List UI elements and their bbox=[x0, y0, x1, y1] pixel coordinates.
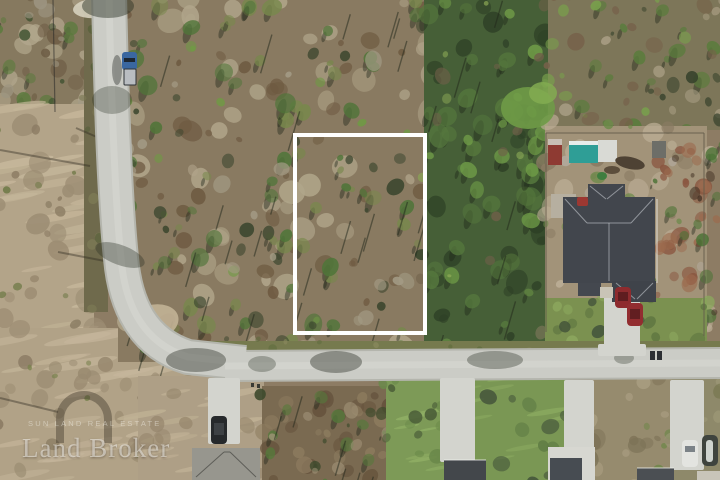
vehicle-red-car-1-roof bbox=[618, 292, 628, 301]
vegetation-blob bbox=[493, 456, 510, 471]
house-c-roof bbox=[444, 460, 486, 480]
mailbox-post-2 bbox=[257, 384, 260, 388]
main-house-wing-sw bbox=[578, 283, 601, 296]
vehicle-blue-truck-windshield bbox=[124, 58, 135, 62]
scene-canvas bbox=[0, 0, 720, 480]
trailer-white-canopy bbox=[598, 140, 617, 162]
blue-truck-shadow bbox=[112, 55, 122, 85]
vehicle-red-utility bbox=[577, 197, 588, 206]
tree-shadow-on-road bbox=[248, 356, 276, 372]
vegetation-blob bbox=[680, 231, 689, 240]
trash-bin-1 bbox=[650, 351, 655, 360]
vehicle-red-car-2-roof bbox=[630, 309, 640, 319]
tree-shadow-on-road bbox=[92, 86, 132, 114]
lot-e-south-ground bbox=[592, 378, 676, 480]
vegetation-blob bbox=[628, 438, 646, 453]
house-a-roof bbox=[192, 448, 260, 480]
trash-bin-2 bbox=[657, 351, 662, 360]
house-d-dark-section bbox=[550, 458, 582, 480]
driveway-d bbox=[564, 380, 594, 450]
vehicle-white-car-glass bbox=[685, 446, 695, 452]
driveway-main-flare bbox=[598, 344, 646, 356]
aerial-listing-photo: SUN LAND REAL ESTATE Land Broker bbox=[0, 0, 720, 480]
house-g-roof bbox=[697, 471, 720, 480]
bright-tree-cluster-2 bbox=[529, 82, 557, 104]
woodpile-2 bbox=[604, 166, 620, 174]
walkway bbox=[600, 287, 613, 298]
garden-item-green bbox=[597, 172, 607, 180]
main-house-gable-north bbox=[588, 184, 625, 200]
vehicle-blue-truck-bed bbox=[124, 69, 136, 85]
house-f-roof bbox=[637, 468, 674, 480]
trailer-teal-edge bbox=[569, 141, 598, 145]
trailer-red-top bbox=[548, 139, 562, 145]
mailbox-post-1 bbox=[251, 383, 254, 387]
boat-hull-stripe bbox=[706, 440, 713, 462]
vehicle-dark-car-roof bbox=[214, 423, 224, 435]
vehicle-white-car bbox=[682, 440, 698, 467]
shed-gray bbox=[652, 141, 666, 158]
tree-shadow-on-road bbox=[310, 351, 362, 373]
tree-shadow-on-road bbox=[467, 351, 523, 369]
tree-shadow-on-road bbox=[166, 348, 226, 372]
driveway-c bbox=[440, 378, 475, 462]
